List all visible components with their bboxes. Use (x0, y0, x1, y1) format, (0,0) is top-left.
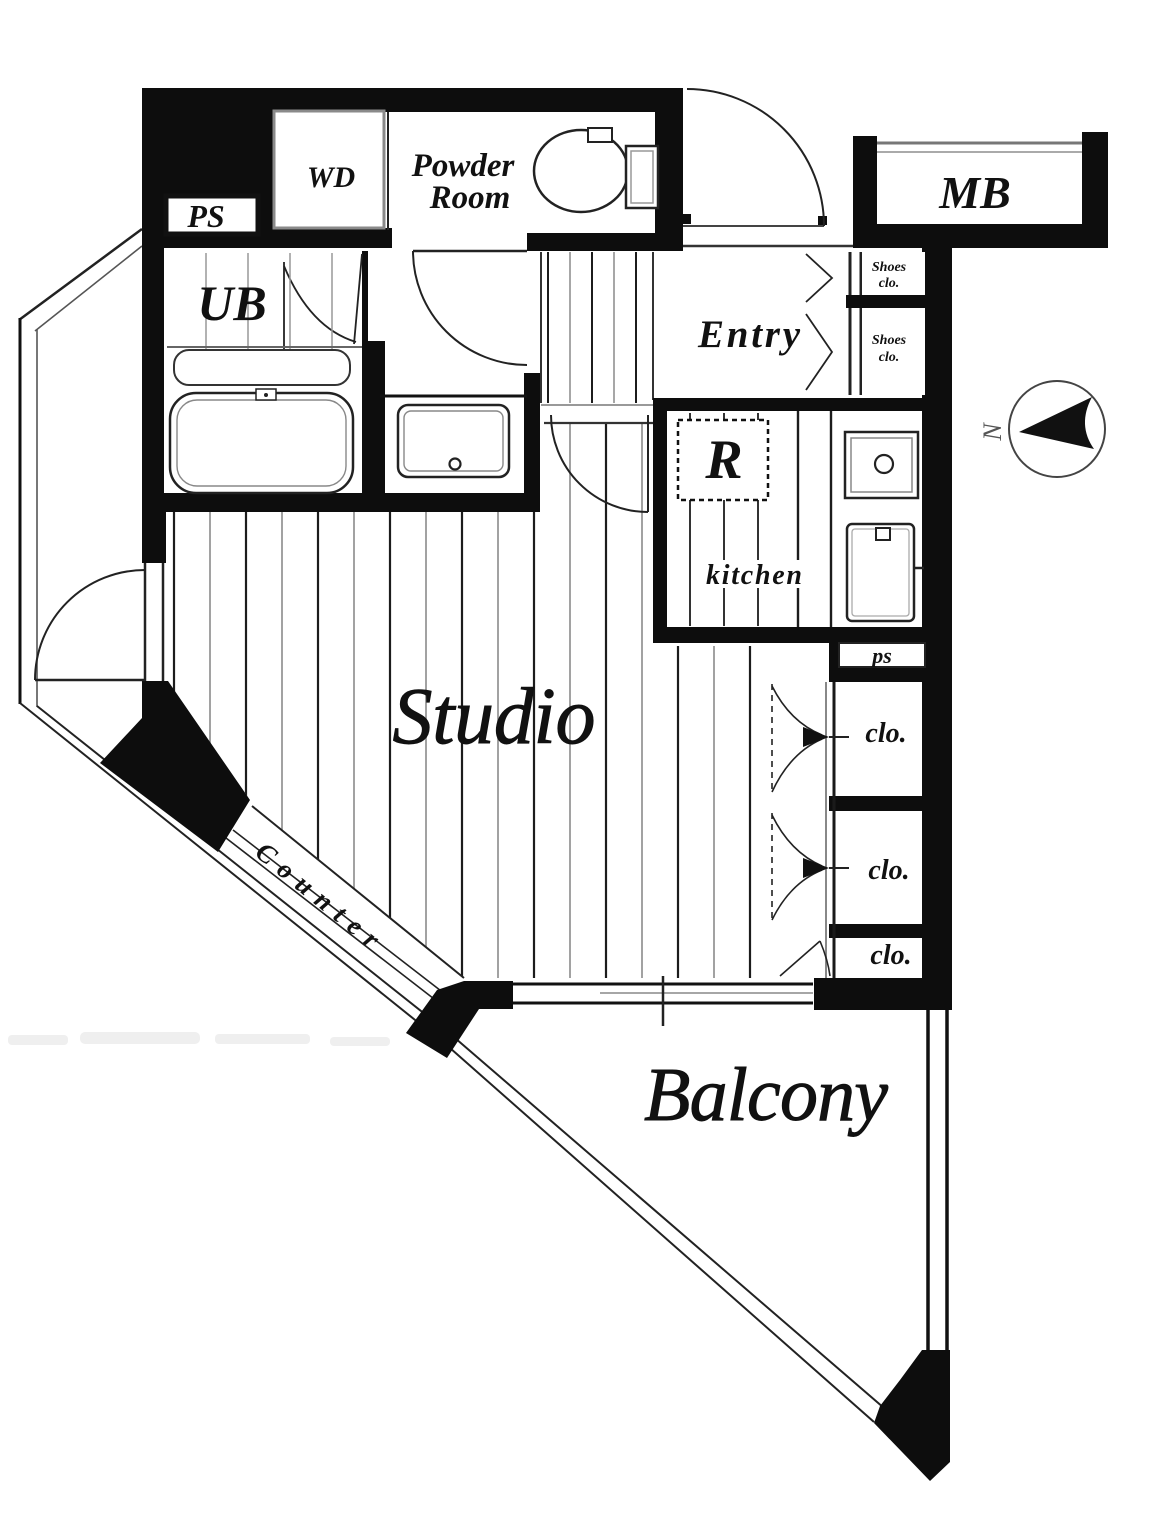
svg-text:Studio: Studio (393, 673, 596, 761)
svg-text:N: N (978, 422, 1007, 442)
svg-text:clo.: clo. (870, 940, 911, 971)
svg-text:PS: PS (186, 198, 224, 234)
svg-text:Balcony: Balcony (644, 1053, 888, 1137)
svg-text:R: R (704, 429, 742, 491)
svg-text:clo.: clo. (868, 855, 909, 886)
svg-text:UB: UB (197, 275, 266, 331)
svg-text:clo.: clo. (879, 276, 900, 291)
svg-text:Room: Room (429, 180, 511, 216)
svg-text:clo.: clo. (879, 350, 900, 365)
svg-text:clo.: clo. (865, 718, 906, 749)
svg-text:Powder: Powder (411, 148, 516, 184)
svg-text:ps: ps (870, 643, 892, 668)
svg-text:WD: WD (307, 161, 355, 194)
svg-text:Shoes: Shoes (872, 260, 907, 275)
svg-text:MB: MB (938, 167, 1011, 218)
svg-text:Shoes: Shoes (872, 333, 907, 348)
